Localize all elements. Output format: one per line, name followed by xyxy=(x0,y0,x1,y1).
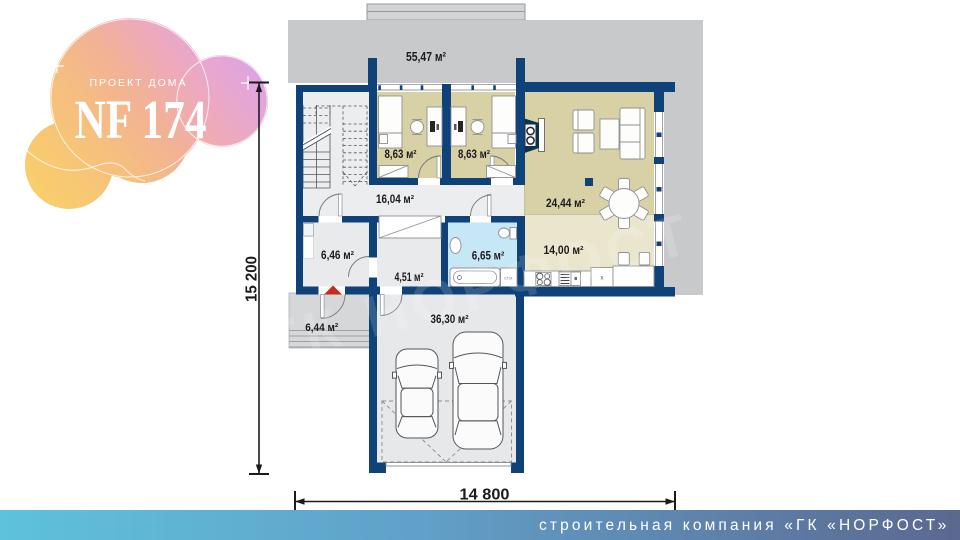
svg-text:8,63 м²: 8,63 м² xyxy=(458,149,490,161)
svg-text:NF 174: NF 174 xyxy=(75,89,207,150)
svg-text:6,46 м²: 6,46 м² xyxy=(321,250,354,262)
svg-text:15 200: 15 200 xyxy=(244,256,261,302)
svg-text:16,04 м²: 16,04 м² xyxy=(376,194,414,206)
svg-text:55,47 м²: 55,47 м² xyxy=(406,50,446,64)
svg-text:4,51 м²: 4,51 м² xyxy=(395,272,424,284)
svg-text:24,44 м²: 24,44 м² xyxy=(546,198,585,210)
svg-text:ПРОЕКТ ДОМА: ПРОЕКТ ДОМА xyxy=(90,77,186,89)
svg-text:строительная компания «ГК «НОР: строительная компания «ГК «НОРФОСТ» xyxy=(539,517,950,534)
svg-text:8,63 м²: 8,63 м² xyxy=(385,149,417,161)
svg-text:6,65 м²: 6,65 м² xyxy=(472,251,505,263)
svg-text:36,30 м²: 36,30 м² xyxy=(431,314,469,326)
svg-text:6,44 м²: 6,44 м² xyxy=(305,322,338,334)
svg-text:14 800: 14 800 xyxy=(460,487,510,504)
svg-text:14,00 м²: 14,00 м² xyxy=(544,245,584,257)
